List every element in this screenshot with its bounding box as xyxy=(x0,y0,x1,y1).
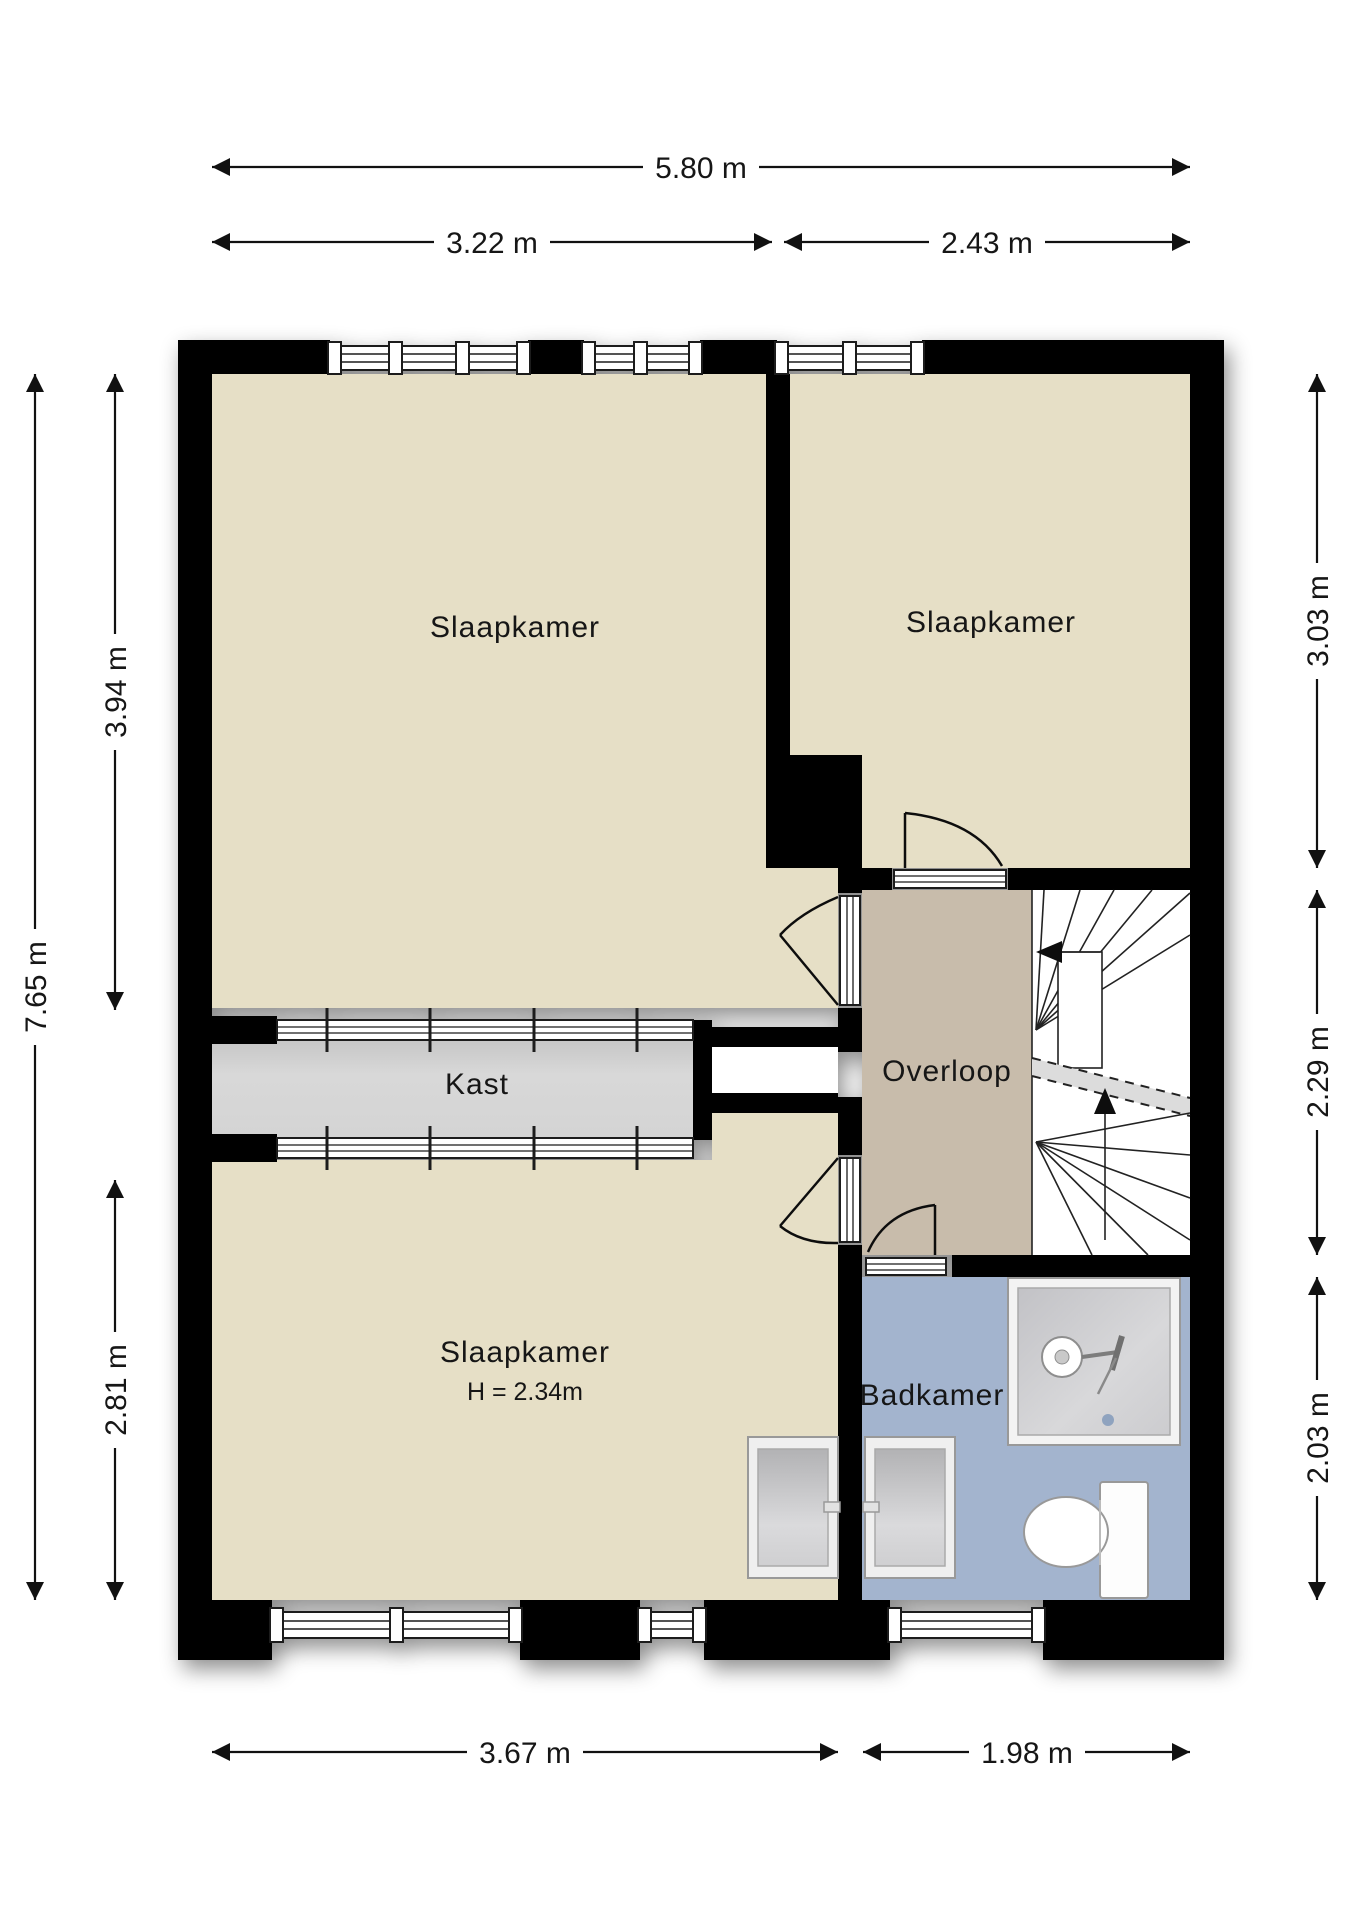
wall-bottom-seg2 xyxy=(520,1600,640,1660)
floorplan-page: Slaapkamer Slaapkamer Kast Overloop Slaa… xyxy=(0,0,1358,1920)
window-bedroom2-top xyxy=(775,342,924,374)
wall-top-seg2 xyxy=(528,340,584,374)
wall-overloop-west-c xyxy=(838,1097,862,1155)
dimension-label: 5.80 m xyxy=(655,152,747,185)
room-label-slaapkamer-bottom: Slaapkamer xyxy=(440,1336,610,1369)
dimension-top-left-room: 3.22 m xyxy=(212,223,772,261)
radiator-bathroom xyxy=(863,1437,955,1578)
dimension-label: 2.29 m xyxy=(1302,1026,1335,1118)
room-sublabel-height: H = 2.34m xyxy=(467,1378,583,1406)
dimension-label: 3.03 m xyxy=(1302,575,1335,667)
radiator-bedroom xyxy=(748,1437,840,1578)
room-label-kast: Kast xyxy=(445,1068,509,1101)
dimension-label: 2.81 m xyxy=(100,1344,133,1436)
dimension-label: 3.67 m xyxy=(479,1737,571,1770)
floorplan-svg: Slaapkamer Slaapkamer Kast Overloop Slaa… xyxy=(0,0,1358,1920)
window-badkamer-bottom xyxy=(888,1608,1045,1642)
wall-bottom-seg4 xyxy=(1043,1600,1224,1660)
stairs-landing xyxy=(1058,952,1102,1068)
dimension-right-bedroom2: 3.03 m xyxy=(1298,374,1336,868)
window-bedroom3-bottom-b xyxy=(638,1608,706,1642)
wall-bedroom2-bottom-b xyxy=(1008,868,1190,890)
room-label-overloop: Overloop xyxy=(882,1055,1012,1088)
wall-niche-top xyxy=(693,1027,862,1047)
room-label-slaapkamer-top-right: Slaapkamer xyxy=(906,606,1076,639)
dimension-left-total: 7.65 m xyxy=(16,374,54,1600)
wall-right xyxy=(1190,340,1224,1660)
dimension-bottom-bathroom: 1.98 m xyxy=(863,1733,1190,1771)
dimension-right-bathroom: 2.03 m xyxy=(1298,1277,1336,1600)
room-slaapkamer-top-left-floor xyxy=(212,374,838,1008)
dimension-label: 2.43 m xyxy=(941,227,1033,260)
wall-bedroom-bathroom xyxy=(838,1245,862,1600)
building xyxy=(178,340,1224,1660)
dimension-bottom-bedroom: 3.67 m xyxy=(212,1733,838,1771)
dimension-left-bedroom3: 2.81 m xyxy=(96,1180,134,1600)
window-bedroom1-top-a xyxy=(328,342,530,374)
wall-left xyxy=(178,340,212,1660)
wall-bottom-seg1 xyxy=(178,1600,272,1660)
dimension-right-overloop: 2.29 m xyxy=(1298,890,1336,1255)
wall-top-seg3 xyxy=(700,340,777,374)
wall-kast-top-stub xyxy=(212,1016,277,1044)
wall-bottom-seg3 xyxy=(704,1600,890,1660)
wall-bathroom-top xyxy=(952,1255,1190,1277)
wall-top-seg1 xyxy=(178,340,330,374)
room-label-slaapkamer-top-left: Slaapkamer xyxy=(430,611,600,644)
shower xyxy=(1008,1278,1180,1445)
dimension-label: 1.98 m xyxy=(981,1737,1073,1770)
radiator-valve-icon xyxy=(824,1502,840,1512)
dimension-label: 3.22 m xyxy=(446,227,538,260)
wall-bedroom-divider xyxy=(766,374,790,755)
toilet-bowl xyxy=(1024,1497,1108,1567)
wall-overloop-west-a xyxy=(838,868,862,893)
wall-niche-bottom xyxy=(693,1093,838,1113)
wall-divider-jog-block xyxy=(766,755,862,868)
window-bedroom3-bottom-a xyxy=(270,1608,522,1642)
radiator-valve-icon xyxy=(863,1502,879,1512)
closet-niche-floor xyxy=(712,1047,838,1093)
wall-bedroom2-bottom-a xyxy=(862,868,892,890)
dimension-top-total: 5.80 m xyxy=(212,148,1190,186)
shower-drain-icon xyxy=(1102,1414,1114,1426)
dimension-top-right-room: 2.43 m xyxy=(784,223,1190,261)
wall-kast-bottom-stub xyxy=(212,1134,277,1162)
room-label-badkamer: Badkamer xyxy=(860,1379,1005,1412)
dimension-label: 3.94 m xyxy=(100,646,133,738)
dimension-label: 7.65 m xyxy=(20,941,53,1033)
window-bedroom1-top-b xyxy=(582,342,702,374)
dimension-label: 2.03 m xyxy=(1302,1392,1335,1484)
dimension-left-bedroom1: 3.94 m xyxy=(96,374,134,1010)
wall-top-seg4 xyxy=(922,340,1224,374)
